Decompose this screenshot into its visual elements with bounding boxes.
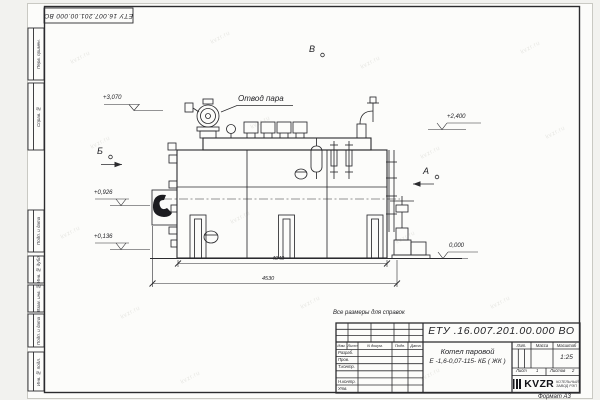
drawing-linework xyxy=(0,0,600,400)
view-arrows xyxy=(101,53,439,187)
sig-row-prov: Пров. xyxy=(338,358,349,363)
header-mass: Масса xyxy=(531,344,553,349)
side-flange-stubs xyxy=(169,155,177,247)
dimension-inner-4040: 4040 xyxy=(272,256,284,262)
elevation-marks xyxy=(95,105,481,259)
view-marker-b: Б xyxy=(97,147,103,157)
reference-note: Все размеры для справок xyxy=(333,310,405,317)
kvzr-logo-text: KVZR xyxy=(524,378,554,390)
drum-hatches xyxy=(244,122,307,138)
support-legs xyxy=(190,215,383,258)
feed-pump-unit xyxy=(390,196,430,259)
kvzr-subtitle: КОТЕЛЬНЫЙ ЗАВОД РЭП xyxy=(556,380,579,388)
elevation-0000: 0,000 xyxy=(449,243,464,250)
kvzr-subtitle-line2: ЗАВОД РЭП xyxy=(556,384,579,388)
sheets-label: Листов xyxy=(550,369,565,374)
sheets-value: 2 xyxy=(572,369,574,374)
elevation-0926: +0,926 xyxy=(94,190,113,197)
sig-row-utv: Утв. xyxy=(338,387,348,392)
sig-header-date: Дата xyxy=(408,344,423,348)
sig-header-doc: N докум. xyxy=(358,344,392,348)
elevation-2400: +2,400 xyxy=(447,114,466,121)
boiler-side-view xyxy=(150,97,462,259)
frame-field-inv-podl: Инв. № подл. xyxy=(33,352,44,391)
frame-field-podp-data-2: Подп. и дата xyxy=(33,314,44,347)
product-name-line2: Е -1,6-0,07-115- КБ ( ЖК ) xyxy=(423,358,512,365)
frame-field-podp-data-1: Подп. и дата xyxy=(33,210,44,252)
elevation-3070: +3,070 xyxy=(103,95,122,102)
sheet-value: 1 xyxy=(536,369,538,374)
steam-outlet-leader-line xyxy=(221,106,293,113)
product-name-line1: Котел паровой xyxy=(423,348,512,356)
elevation-0136: +0,136 xyxy=(94,234,113,241)
company-cell: KVZR КОТЕЛЬНЫЙ ЗАВОД РЭП xyxy=(512,376,580,394)
drum-small-valve xyxy=(227,125,236,139)
sig-row-tkontr: Т.контр. xyxy=(338,365,355,370)
drawing-sheet-page: { "meta": { "watermark": "kvzr.ru", "for… xyxy=(0,0,600,400)
frame-field-inv-dubl: Инв. № дубл. xyxy=(33,256,44,283)
steam-outlet-valve xyxy=(185,99,219,138)
sig-row-razrab: Разраб. xyxy=(338,351,353,356)
frame-field-sprav-no: Справ. № xyxy=(33,83,44,150)
sig-header-sign: Подп. xyxy=(392,344,408,348)
sig-row-nkontr: Н.контр. xyxy=(338,380,356,385)
sheet-label: Лист xyxy=(516,369,527,374)
sig-header-list: Лист xyxy=(347,344,358,348)
steam-drum xyxy=(203,138,371,150)
view-marker-a: А xyxy=(423,167,429,177)
water-level-gauges xyxy=(311,138,353,179)
top-document-stamp: ЕТУ 16.007.201.00.000 ВО xyxy=(44,8,133,23)
burner-unit xyxy=(152,190,177,225)
frame-field-perv-primen: Перв. примен. xyxy=(33,28,44,80)
downcomer-pipe xyxy=(386,150,397,232)
header-lit: Лит. xyxy=(512,344,531,349)
boiler-body xyxy=(163,143,400,258)
dimension-overall-4530: 4530 xyxy=(262,276,274,282)
sig-header-izm: Изм. xyxy=(336,344,347,348)
header-scale: Масштаб xyxy=(553,344,580,349)
scale-value: 1:25 xyxy=(553,354,580,361)
frame-field-vzam-inv: Взам. инв. № xyxy=(33,285,44,312)
title-block-doc-number: ЕТУ .16.007.201.00.000 ВО xyxy=(423,326,580,338)
kvzr-logo-icon xyxy=(513,379,522,389)
manholes xyxy=(204,169,307,243)
format-label: Формат А3 xyxy=(538,394,571,400)
steam-outlet-callout: Отвод пара xyxy=(238,95,284,104)
safety-valve xyxy=(357,97,379,138)
view-marker-v: В xyxy=(309,45,315,55)
